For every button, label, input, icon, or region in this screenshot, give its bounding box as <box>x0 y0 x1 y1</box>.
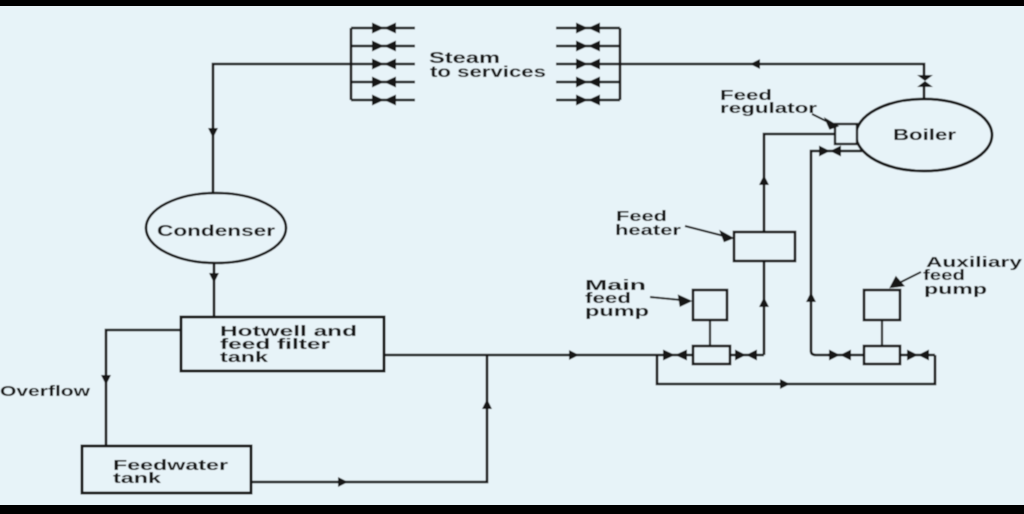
svg-text:pump: pump <box>924 281 987 298</box>
svg-text:regulator: regulator <box>720 100 817 117</box>
svg-text:heater: heater <box>615 222 681 239</box>
svg-text:Overflow: Overflow <box>0 383 90 400</box>
svg-text:tank: tank <box>220 349 269 366</box>
svg-text:to services: to services <box>430 64 546 81</box>
svg-text:tank: tank <box>113 470 162 487</box>
svg-text:Condenser: Condenser <box>157 223 275 240</box>
svg-text:Boiler: Boiler <box>893 127 956 144</box>
svg-text:pump: pump <box>585 303 649 320</box>
